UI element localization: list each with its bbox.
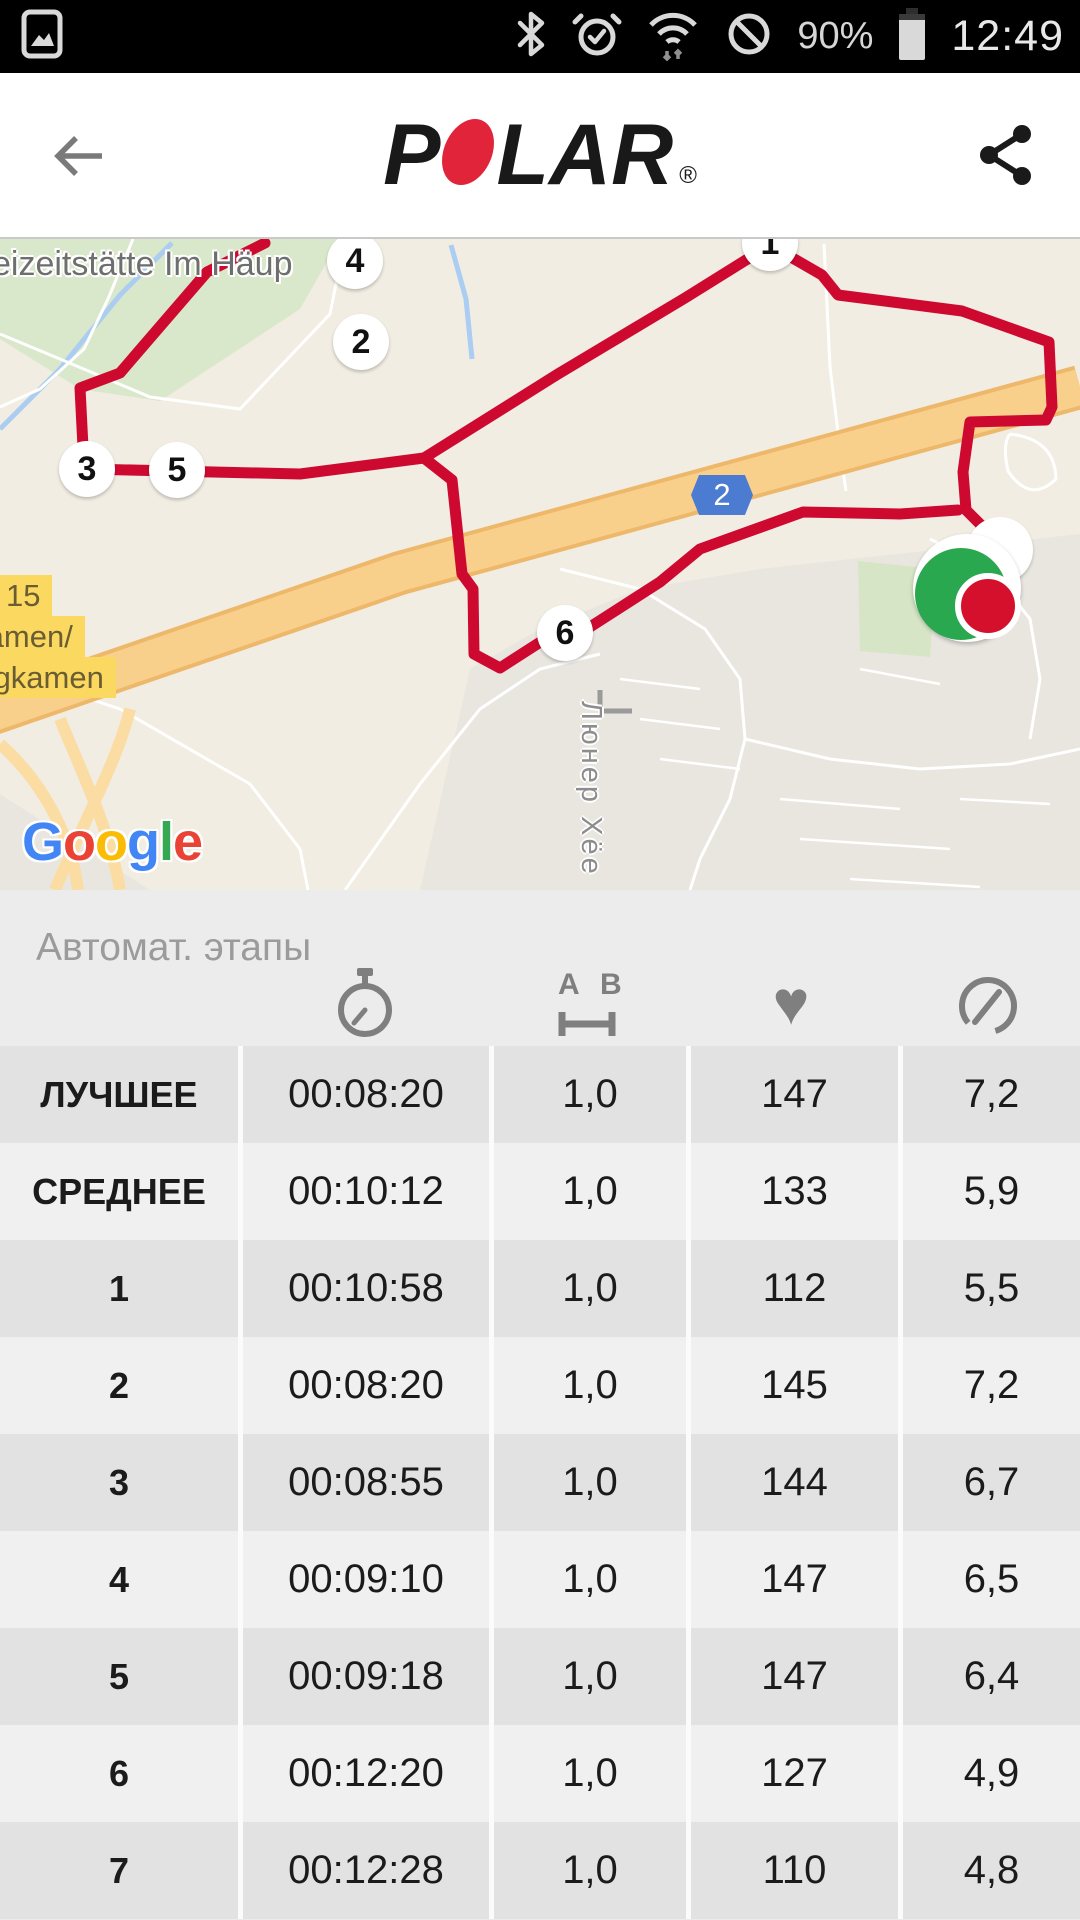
lap-label: 4 (0, 1531, 238, 1628)
exit-sign-city-1: Kamen/ (0, 616, 85, 657)
lap-row: 400:09:101,01476,5 (0, 1531, 1080, 1628)
google-attribution[interactable]: Google (22, 811, 202, 873)
lap-heart_rate: 133 (691, 1143, 898, 1240)
lap-distance: 1,0 (494, 1822, 686, 1919)
lap-speed: 5,5 (903, 1240, 1080, 1337)
lap-time: 00:10:58 (243, 1240, 489, 1337)
map-street-label: Люнер Хёе (574, 701, 607, 877)
alarm-icon (571, 7, 623, 66)
lap-label: 2 (0, 1337, 238, 1434)
lap-row: 100:10:581,01125,5 (0, 1240, 1080, 1337)
polar-logo: PLAR® (0, 73, 1080, 237)
status-bar: 90% 12:49 (0, 0, 1080, 73)
stopwatch-icon (333, 966, 397, 1042)
do-not-disturb-icon (723, 8, 775, 65)
battery-percent: 90% (797, 15, 873, 58)
lap-distance: 1,0 (494, 1337, 686, 1434)
lap-distance: 1,0 (494, 1725, 686, 1822)
lap-time: 00:10:12 (243, 1143, 489, 1240)
lap-label: 1 (0, 1240, 238, 1337)
lap-heart_rate: 147 (691, 1046, 898, 1143)
lap-time: 00:08:20 (243, 1046, 489, 1143)
share-button[interactable] (976, 123, 1036, 187)
lap-speed: 7,2 (903, 1046, 1080, 1143)
lap-distance: 1,0 (494, 1240, 686, 1337)
registered-mark: ® (679, 164, 697, 188)
map-place-label: eizeitstätte Im Häup (0, 245, 292, 284)
back-button[interactable] (48, 125, 110, 187)
svg-text:B: B (600, 968, 622, 1001)
lap-heart_rate: 127 (691, 1725, 898, 1822)
distance-column-header: A B (539, 966, 639, 1042)
lap-label: ЛУЧШЕЕ (0, 1046, 238, 1143)
lap-time: 00:09:18 (243, 1628, 489, 1725)
lap-distance: 1,0 (494, 1434, 686, 1531)
laps-table: ЛУЧШЕЕ00:08:201,01477,2СРЕДНЕЕ00:10:121,… (0, 1046, 1080, 1919)
speed-column-header (938, 966, 1038, 1042)
lap-heart_rate: 112 (691, 1240, 898, 1337)
exit-sign-city-2: ergkamen (0, 657, 116, 698)
lap-time: 00:09:10 (243, 1531, 489, 1628)
road-shield-b2: 2 (691, 475, 753, 515)
bluetooth-icon (513, 7, 549, 66)
lap-distance: 1,0 (494, 1143, 686, 1240)
lap-row: 600:12:201,01274,9 (0, 1725, 1080, 1822)
lap-heart_rate: 147 (691, 1531, 898, 1628)
lap-speed: 6,4 (903, 1628, 1080, 1725)
distance-ab-icon: A B (544, 966, 634, 1042)
speedometer-icon (953, 966, 1023, 1042)
duration-column-header (315, 966, 415, 1042)
heart-rate-column-header: ♥ (741, 966, 841, 1042)
lap-marker-2: 2 (333, 314, 389, 370)
laps-section-title: Автомат. этапы (36, 926, 311, 970)
lap-speed: 4,8 (903, 1822, 1080, 1919)
polar-logo-o-icon (436, 119, 500, 185)
lap-label: 7 (0, 1822, 238, 1919)
lap-marker-5: 5 (149, 442, 205, 498)
lap-heart_rate: 144 (691, 1434, 898, 1531)
polar-flow-app-screen: 90% 12:49 PLAR® (0, 0, 1080, 1920)
lap-label: 5 (0, 1628, 238, 1725)
lap-label: 6 (0, 1725, 238, 1822)
lap-row: ЛУЧШЕЕ00:08:201,01477,2 (0, 1046, 1080, 1143)
finish-marker-icon (955, 573, 1021, 639)
svg-text:A: A (558, 968, 580, 1001)
lap-speed: 6,7 (903, 1434, 1080, 1531)
battery-icon (895, 6, 929, 67)
lap-speed: 7,2 (903, 1337, 1080, 1434)
lap-time: 00:08:20 (243, 1337, 489, 1434)
lap-distance: 1,0 (494, 1628, 686, 1725)
lap-speed: 4,9 (903, 1725, 1080, 1822)
lap-row: 200:08:201,01457,2 (0, 1337, 1080, 1434)
lap-speed: 5,9 (903, 1143, 1080, 1240)
lap-speed: 6,5 (903, 1531, 1080, 1628)
lap-time: 00:12:28 (243, 1822, 489, 1919)
lap-time: 00:08:55 (243, 1434, 489, 1531)
lap-row: 500:09:181,01476,4 (0, 1628, 1080, 1725)
lap-heart_rate: 147 (691, 1628, 898, 1725)
screenshot-icon (16, 8, 68, 65)
lap-marker-3: 3 (59, 441, 115, 497)
exit-sign-number: 15 (0, 575, 52, 616)
app-bar: PLAR® (0, 73, 1080, 237)
lap-row: 700:12:281,01104,8 (0, 1822, 1080, 1919)
lap-row: 300:08:551,01446,7 (0, 1434, 1080, 1531)
lap-distance: 1,0 (494, 1046, 686, 1143)
route-map[interactable]: eizeitstätte Im Häup 15 Kamen/ ergkamen … (0, 237, 1080, 890)
lap-heart_rate: 110 (691, 1822, 898, 1919)
polar-logo-p: P (383, 112, 440, 198)
lap-marker-6: 6 (537, 605, 593, 661)
wifi-icon (645, 7, 701, 66)
lap-heart_rate: 145 (691, 1337, 898, 1434)
lap-label: 3 (0, 1434, 238, 1531)
lap-distance: 1,0 (494, 1531, 686, 1628)
heart-icon: ♥ (773, 973, 810, 1035)
status-time: 12:49 (951, 12, 1064, 61)
lap-time: 00:12:20 (243, 1725, 489, 1822)
polar-logo-lar: LAR (496, 112, 673, 198)
lap-row: СРЕДНЕЕ00:10:121,01335,9 (0, 1143, 1080, 1240)
lap-label: СРЕДНЕЕ (0, 1143, 238, 1240)
